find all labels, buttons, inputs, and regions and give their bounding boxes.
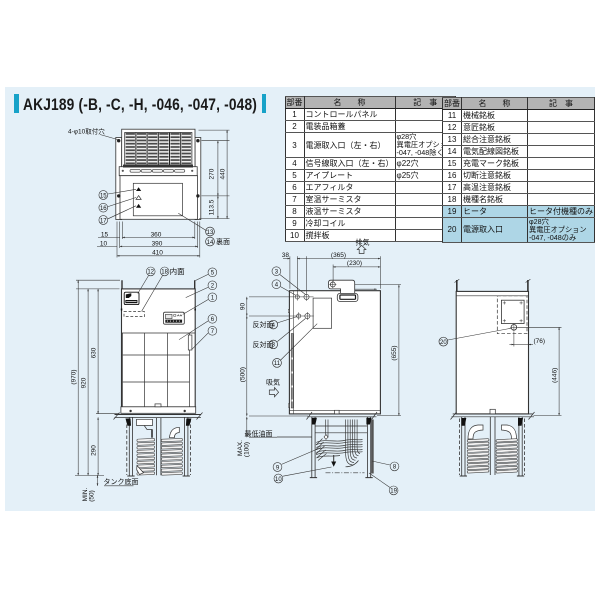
svg-text:(655): (655) <box>391 345 398 360</box>
svg-text:5: 5 <box>211 271 215 277</box>
svg-text:4: 4 <box>272 323 276 329</box>
svg-text:4-φ10取付穴: 4-φ10取付穴 <box>68 127 105 136</box>
svg-text:920: 920 <box>80 377 87 388</box>
svg-text:最低油面: 最低油面 <box>245 429 273 438</box>
svg-text:630: 630 <box>90 347 97 358</box>
svg-text:9: 9 <box>276 465 280 471</box>
svg-text:15: 15 <box>100 193 107 199</box>
svg-text:6: 6 <box>211 317 215 323</box>
svg-text:14: 14 <box>207 240 214 246</box>
svg-text:16: 16 <box>100 206 107 212</box>
svg-text:410: 410 <box>152 250 163 257</box>
svg-text:(100): (100) <box>244 442 251 457</box>
svg-text:(76): (76) <box>534 338 546 345</box>
svg-text:(500): (500) <box>239 367 246 382</box>
svg-text:吸気: 吸気 <box>266 378 280 387</box>
svg-text:(970): (970) <box>71 369 78 384</box>
svg-text:90: 90 <box>239 303 246 311</box>
svg-text:38: 38 <box>282 252 290 259</box>
svg-text:(230): (230) <box>347 260 362 267</box>
svg-text:390: 390 <box>152 240 163 247</box>
svg-text:(50): (50) <box>89 490 96 502</box>
svg-text:440: 440 <box>220 168 227 179</box>
svg-text:18: 18 <box>161 270 168 276</box>
svg-text:10: 10 <box>100 240 108 247</box>
svg-text:113.5: 113.5 <box>209 199 216 215</box>
svg-text:270: 270 <box>209 168 216 179</box>
svg-text:290: 290 <box>90 445 97 456</box>
svg-text:8: 8 <box>393 465 397 471</box>
svg-text:11: 11 <box>274 361 281 367</box>
svg-text:10: 10 <box>275 477 282 483</box>
svg-text:(365): (365) <box>331 252 346 259</box>
svg-text:7: 7 <box>211 329 215 335</box>
svg-text:内面: 内面 <box>170 266 185 276</box>
svg-text:3: 3 <box>272 343 276 349</box>
svg-text:13: 13 <box>207 230 214 236</box>
svg-text:排気: 排気 <box>356 237 370 246</box>
svg-text:20: 20 <box>440 340 447 346</box>
svg-text:17: 17 <box>100 218 107 224</box>
svg-text:1: 1 <box>211 296 215 302</box>
svg-text:19: 19 <box>390 489 397 495</box>
svg-text:3: 3 <box>275 270 279 276</box>
svg-text:2: 2 <box>211 284 215 290</box>
svg-text:(446): (446) <box>551 368 558 383</box>
svg-text:15: 15 <box>101 231 109 238</box>
svg-text:4: 4 <box>275 283 279 289</box>
svg-text:裏面: 裏面 <box>216 237 230 246</box>
svg-text:タンク底面: タンク底面 <box>104 477 139 486</box>
svg-text:360: 360 <box>151 231 162 238</box>
svg-text:12: 12 <box>147 270 154 276</box>
